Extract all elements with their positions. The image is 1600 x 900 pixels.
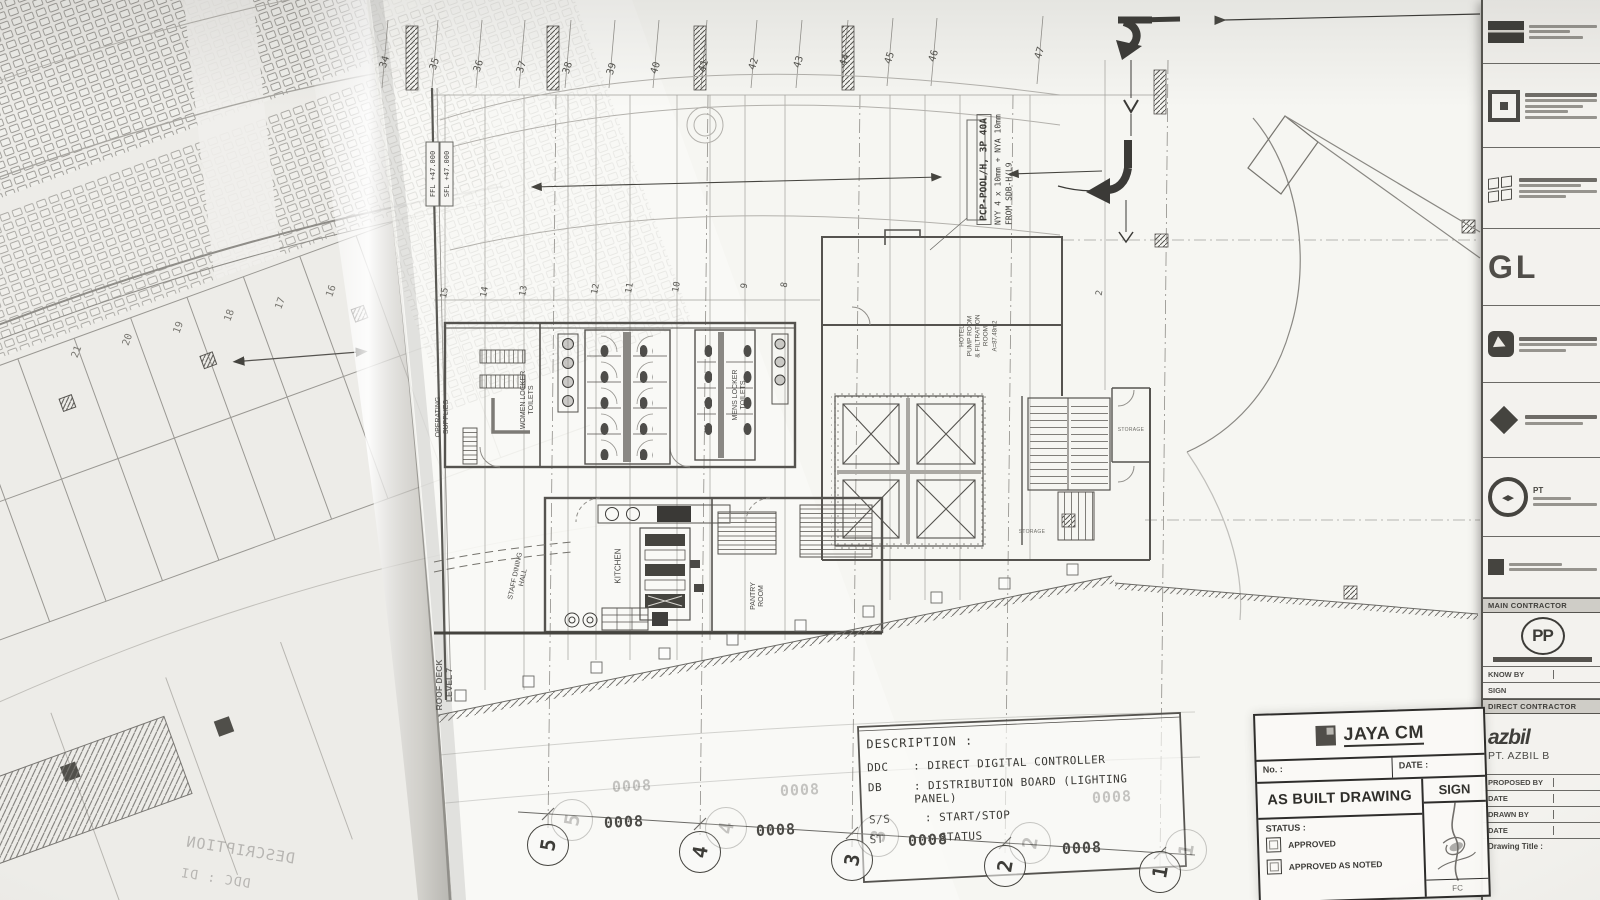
legend-desc: : DISTRIBUTION BOARD (LIGHTING PANEL) xyxy=(914,770,1175,805)
k-circle-logo-icon: ◂▸ xyxy=(1488,477,1528,517)
pp-underbar xyxy=(1493,657,1592,662)
feeder-panel-label: PCP-POOL/H, 3P 40A xyxy=(977,114,992,225)
pp-logo-box: PP xyxy=(1483,613,1600,667)
room-label-operating-supplies: OPERATING SUPPLIES xyxy=(435,397,451,438)
sign-label: SIGN xyxy=(1488,686,1506,695)
grid-number-mid: 11 xyxy=(624,282,636,294)
room-label-women-locker: WOMEN LOCKER TOILETS xyxy=(520,371,536,429)
feeder-cable-label: NYY 4 x 10mm + NYA 10mm xyxy=(994,114,1003,225)
sign-row: SIGN xyxy=(1483,683,1600,699)
area-label-roof-deck: ROOF DECK LEVEL 7 xyxy=(435,660,455,711)
dimension-text: 0008 xyxy=(1061,838,1102,858)
diamond-logo-icon xyxy=(1490,406,1518,434)
company-logo-icon xyxy=(1488,90,1520,122)
illegible-text xyxy=(1519,175,1597,201)
status-label: STATUS : xyxy=(1265,819,1415,834)
direct-contractor-header: DIRECT CONTRACTOR xyxy=(1483,699,1600,714)
room-label-kitchen: KITCHEN xyxy=(613,548,622,583)
title-block: JAYA CM No. : DATE : AS BUILT DRAWING ST… xyxy=(1253,707,1491,900)
illegible-text xyxy=(1525,413,1597,428)
legend-abbr: DB xyxy=(868,779,915,807)
proposed-by-value xyxy=(1553,778,1597,787)
know-by-value xyxy=(1553,670,1597,679)
logo-box-8 xyxy=(1483,537,1600,598)
jaya-cm-logo-icon xyxy=(1315,725,1336,746)
small-logo-icon xyxy=(1488,559,1504,575)
logo-box-2 xyxy=(1483,64,1600,148)
date-label: DATE xyxy=(1488,826,1508,835)
illegible-text xyxy=(1509,560,1597,574)
blueprint-photo: 21 20 19 18 17 16 xyxy=(0,0,1600,900)
azbil-box: azbil PT. AZBIL B xyxy=(1483,714,1600,775)
date-value xyxy=(1553,794,1597,803)
main-contractor-header: MAIN CONTRACTOR xyxy=(1483,598,1600,613)
drawing-title-label: Drawing Title : xyxy=(1488,842,1543,862)
ghost-bubble: 3 xyxy=(857,815,899,857)
legend-desc: : DIRECT DIGITAL CONTROLLER xyxy=(913,753,1106,773)
ghost-bubble: 1 xyxy=(1165,829,1207,871)
proposed-by-label: PROPOSED BY xyxy=(1488,778,1543,787)
legend-desc: : START/STOP xyxy=(925,808,1011,824)
ghost-bubble: 2 xyxy=(1009,822,1051,864)
know-by-row: KNOW BY xyxy=(1483,667,1600,683)
company-logo-icon xyxy=(1488,175,1514,201)
grid-number-mid: 13 xyxy=(518,285,530,297)
room-label-hotel-pump: HOTEL PUMP ROOM & FILTRATION ROOM A=87.4… xyxy=(958,291,998,381)
drawn-by-row: DRAWN BY xyxy=(1483,807,1600,823)
bird-logo-icon xyxy=(1488,331,1514,357)
know-by-label: KNOW BY xyxy=(1488,670,1524,679)
status-section: STATUS : APPROVED APPROVED AS NOTED xyxy=(1258,815,1424,900)
hotel-pump-name: HOTEL PUMP ROOM & FILTRATION ROOM xyxy=(958,314,991,357)
drawn-by-label: DRAWN BY xyxy=(1488,810,1529,819)
date-value xyxy=(1553,826,1597,835)
dimension-text: 0008 xyxy=(755,820,796,840)
contractor-logo-strip: GL ◂▸ PT MAIN CONTRACTOR PP KNOW BY SIGN… xyxy=(1481,0,1600,900)
logo-box-diamond xyxy=(1483,383,1600,458)
room-label-storage-2: STORAGE xyxy=(1019,529,1045,535)
ghost-dimension-text: 0008 xyxy=(1091,787,1132,807)
logo-box-1 xyxy=(1483,0,1600,64)
logo-box-bird xyxy=(1483,306,1600,383)
room-label-pantry: PANTRY ROOM xyxy=(750,582,766,610)
grid-number-mid: 14 xyxy=(479,286,491,298)
date-row-2: DATE xyxy=(1483,823,1600,839)
grid-number-mid: 15 xyxy=(439,287,451,299)
status-option-approved: APPROVED xyxy=(1266,833,1416,853)
approved-as-noted-label: APPROVED AS NOTED xyxy=(1289,859,1383,872)
room-label-storage-1: STORAGE xyxy=(1118,427,1144,433)
sign-note: FC xyxy=(1426,878,1489,897)
drawn-by-value xyxy=(1553,810,1597,819)
logo-box-gl: GL xyxy=(1483,229,1600,306)
title-block-header: JAYA CM xyxy=(1255,709,1484,762)
dimension-text: 0008 xyxy=(907,830,948,850)
ghost-bubble: 5 xyxy=(551,799,593,841)
pp-logo: PP xyxy=(1521,617,1565,655)
drawing-title-row: Drawing Title : xyxy=(1483,839,1600,865)
azbil-company-name: PT. AZBIL B xyxy=(1488,750,1550,762)
ghost-dimension-text: 0008 xyxy=(779,780,820,800)
illegible-text xyxy=(1529,22,1597,41)
date-label: DATE xyxy=(1488,794,1508,803)
logo-box-k: ◂▸ PT xyxy=(1483,458,1600,537)
dimension-text: 0008 xyxy=(603,812,644,832)
pt-label: PT xyxy=(1533,486,1597,495)
ghost-dimension-text: 0008 xyxy=(611,776,652,796)
grid-number-mid: 12 xyxy=(590,283,602,295)
checkbox-approved xyxy=(1266,837,1281,852)
ghost-bubble: 4 xyxy=(705,807,747,849)
legend-abbr: DDC xyxy=(867,760,913,775)
drawing-type-label: AS BUILT DRAWING xyxy=(1257,779,1422,820)
status-option-approved-as-noted: APPROVED AS NOTED xyxy=(1267,855,1417,875)
logo-box-3 xyxy=(1483,148,1600,229)
sign-header: SIGN xyxy=(1423,777,1486,804)
hotel-pump-area: A=87.48m2 xyxy=(992,321,998,352)
company-logo-icon xyxy=(1488,21,1524,43)
illegible-text xyxy=(1519,334,1597,354)
feeder-source-label: FROM SDB-H/L9 xyxy=(1005,162,1014,225)
gl-logo: GL xyxy=(1488,251,1538,283)
approved-label: APPROVED xyxy=(1288,838,1336,849)
date-label: DATE : xyxy=(1393,756,1435,777)
signature-area: FC xyxy=(1424,802,1489,897)
checkbox-approved-as-noted xyxy=(1267,859,1282,874)
azbil-logo: azbil xyxy=(1488,727,1530,748)
ffl-level-label: FFL +47.000 xyxy=(429,151,437,197)
proposed-by-row: PROPOSED BY xyxy=(1483,775,1600,791)
pt-text: PT xyxy=(1533,486,1597,509)
number-label: No. : xyxy=(1257,758,1394,782)
sfl-level-label: SFL +47.000 xyxy=(443,151,451,197)
feeder-note: PCP-POOL/H, 3P 40A NYY 4 x 10mm + NYA 10… xyxy=(977,115,1014,225)
drawing-title-area xyxy=(1483,865,1600,900)
room-label-mens-locker: MENS LOCKER TOILETS xyxy=(732,370,748,421)
illegible-text xyxy=(1525,90,1597,121)
date-row-1: DATE xyxy=(1483,791,1600,807)
company-name: JAYA CM xyxy=(1343,721,1424,747)
grid-number-mid: 10 xyxy=(671,281,683,293)
